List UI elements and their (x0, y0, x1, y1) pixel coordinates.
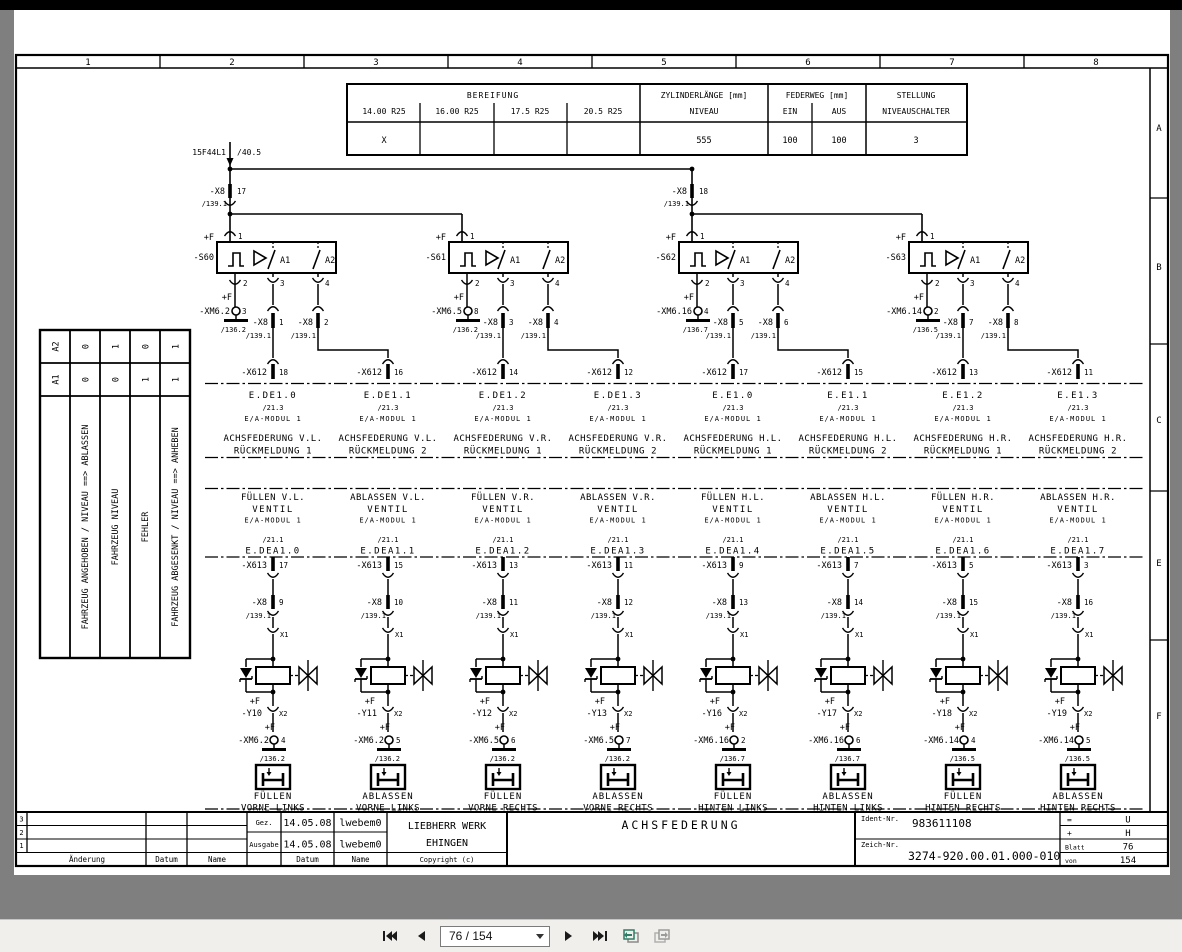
pin-contact (546, 313, 550, 328)
pin-contact (1006, 313, 1010, 328)
pin-contact (501, 557, 505, 571)
signal-name: E.DEA1.7 (1050, 547, 1105, 557)
function-line1: ABLASSEN H.L. (810, 493, 886, 503)
pin-contact (386, 364, 390, 379)
contact-switch (1003, 250, 1010, 269)
terminal-name: -XM6.5 (468, 736, 499, 746)
connector-pin: 4 (554, 318, 559, 327)
socket-arc (958, 707, 969, 711)
socket-arc (958, 307, 969, 311)
coil-pin-label: X1 (740, 631, 748, 639)
connector-label: -X613 (701, 561, 727, 571)
connector-ref: /139.1 (476, 612, 501, 620)
device-name: -Y16 (702, 709, 722, 719)
connector-ref: /139.1 (591, 612, 616, 620)
connector-ref: /139.1 (936, 332, 961, 340)
coil-pin-label: X1 (395, 631, 403, 639)
module-label: E/A-MODUL 1 (1049, 517, 1106, 525)
diode-icon (585, 668, 597, 678)
device-plus: +F (725, 723, 735, 733)
connector-pin: 17 (739, 368, 748, 377)
pin-contact (1076, 364, 1080, 379)
titleblock-label: Ausgabe (249, 841, 279, 849)
function-line1: ABLASSEN H.R. (1040, 493, 1116, 503)
socket-arc (498, 628, 509, 632)
module-label: E/A-MODUL 1 (819, 415, 876, 423)
state-label: FAHRZEUG NIVEAU (111, 489, 121, 566)
function-line2: RÜCKMELDUNG 1 (234, 446, 312, 457)
contact-label: A2 (785, 256, 795, 266)
terminal-ref: /136.7 (683, 326, 708, 334)
titleblock-value: U (1125, 816, 1130, 826)
pin-contact (776, 313, 780, 328)
valve-icon (874, 667, 883, 684)
terminal-circle (500, 736, 508, 744)
socket-arc (728, 360, 739, 364)
last-page-button[interactable] (588, 924, 612, 948)
socket-arc (613, 628, 624, 632)
pin-number: 4 (1015, 279, 1020, 288)
first-page-button[interactable] (378, 924, 402, 948)
terminal-name: -XM6.2 (199, 307, 230, 317)
device-name: -S63 (886, 253, 906, 263)
amplifier-symbol (486, 251, 498, 265)
terminal-ref: /136.2 (260, 755, 285, 763)
pin-number: 2 (475, 279, 480, 288)
terminal-pin: 6 (511, 736, 516, 745)
signal-name: E.E1.1 (827, 391, 869, 401)
connector-ref: /139.1 (706, 332, 731, 340)
connector-pin: 11 (1084, 368, 1093, 377)
company-name: EHINGEN (426, 838, 468, 849)
sheet-ref: /21.3 (1067, 404, 1088, 412)
socket-arc (268, 307, 279, 311)
next-view-button[interactable] (650, 924, 674, 948)
sheet-ref: /21.3 (262, 404, 283, 412)
sheet-ref: /21.1 (722, 536, 743, 544)
sheet-ref: /21.1 (1067, 536, 1088, 544)
contact-label: A2 (325, 256, 335, 266)
valve-icon (414, 667, 423, 684)
coil-pin-label: X1 (625, 631, 633, 639)
sheet-ref: /21.1 (837, 536, 858, 544)
previous-page-button[interactable] (409, 924, 433, 948)
connector-ref: /139.1 (1051, 612, 1076, 620)
spec-value: 3 (913, 136, 918, 146)
coil-pin-label: X2 (969, 710, 977, 718)
frame-row-label: C (1156, 416, 1161, 426)
pin-number: 4 (555, 279, 560, 288)
signal-name: E.DE1.0 (249, 391, 297, 401)
terminal-ref: /136.2 (490, 755, 515, 763)
sheet-ref: /21.1 (607, 536, 628, 544)
pin-contact (731, 313, 735, 328)
coil-box (371, 667, 405, 684)
axle-pictogram (946, 765, 980, 789)
diode-icon (1045, 668, 1057, 678)
connector-pin: 9 (739, 561, 744, 570)
supply-label: 15F44L1 (192, 148, 226, 157)
connector-label: -X8 (1057, 598, 1072, 608)
page-number-combobox[interactable]: 76 / 154 (440, 926, 550, 947)
valve-icon (653, 667, 662, 684)
pulse-symbol (690, 253, 706, 266)
function-line2: RÜCKMELDUNG 1 (464, 446, 542, 457)
terminal-circle (960, 736, 968, 744)
connector-pin: 18 (279, 368, 289, 377)
titleblock-value: lwebem0 (339, 840, 381, 851)
contact-switch (498, 250, 505, 269)
terminal-pin: 4 (281, 736, 286, 745)
contact-label: A2 (1015, 256, 1025, 266)
connector-label: -X8 (988, 318, 1003, 328)
connector-label: -X612 (931, 368, 957, 378)
last-page-icon (592, 930, 608, 942)
axle-tick-arrow (497, 772, 502, 776)
device-plus: +F (595, 697, 605, 707)
connector-pin: 16 (394, 368, 404, 377)
socket-arc (498, 307, 509, 311)
valve-icon (883, 667, 892, 684)
axle-pictogram (486, 765, 520, 789)
titleblock-label: Name (351, 855, 370, 864)
sheet-ref: /21.3 (952, 404, 973, 412)
schematic-drawing: 12345678ABCEFBEREIFUNG14.00 R25X16.00 R2… (14, 10, 1170, 875)
connector-pin: 12 (624, 598, 633, 607)
function-line2: VENTIL (252, 505, 294, 515)
pin-number: 3 (280, 279, 285, 288)
device-plus: +F (825, 697, 835, 707)
socket-arc (498, 360, 509, 364)
socket-arc (728, 707, 739, 711)
connector-label: -X613 (241, 561, 267, 571)
function-line1: ACHSFEDERUNG H.R. (914, 434, 1013, 444)
valve-icon (308, 667, 317, 684)
drawing-title: ACHSFEDERUNG (621, 818, 740, 832)
valve-icon (998, 667, 1007, 684)
connector-ref: /139.1 (291, 332, 316, 340)
function-line1: FÜLLEN V.R. (471, 492, 535, 503)
pin-contact (961, 557, 965, 571)
frame-row-label: E (1156, 559, 1161, 569)
axle-tick-arrow (1072, 772, 1077, 776)
terminal-circle (385, 736, 393, 744)
titleblock-label: Ident-Nr. (861, 815, 899, 823)
pin-contact (961, 313, 965, 328)
frame-column-label: 5 (661, 58, 666, 68)
socket-arc (498, 707, 509, 711)
pin-contact (386, 595, 390, 609)
terminal-pin: 6 (856, 736, 861, 745)
signal-name: E.E1.2 (942, 391, 984, 401)
socket-arc (728, 573, 739, 577)
titleblock-label: + (1067, 829, 1072, 838)
pin-number: 2 (243, 279, 248, 288)
socket-arc (1003, 278, 1014, 282)
socket-arc (383, 707, 394, 711)
contact-switch (543, 250, 550, 269)
spec-header: EIN (783, 107, 798, 116)
socket-arc (958, 278, 969, 282)
signal-name: E.DEA1.5 (820, 547, 875, 557)
signal-name: E.DEA1.6 (935, 547, 990, 557)
socket-arc (543, 278, 554, 282)
terminal-ref: /136.5 (1065, 755, 1090, 763)
function-line2: VENTIL (597, 505, 639, 515)
coil-box (486, 667, 520, 684)
pin-number: 3 (740, 279, 745, 288)
connector-ref: /139.1 (706, 612, 731, 620)
diode-icon (930, 668, 942, 678)
connector-label: -X8 (712, 598, 727, 608)
spec-tire: 20.5 R25 (584, 107, 623, 116)
window-top-bar (0, 0, 1182, 10)
supply-ref: /40.5 (237, 148, 261, 157)
device-plus: +F (222, 293, 232, 303)
socket-arc (268, 573, 279, 577)
device-plus: +F (840, 723, 850, 733)
pin-contact (501, 595, 505, 609)
connector-pin: 6 (784, 318, 789, 327)
module-label: E/A-MODUL 1 (704, 415, 761, 423)
axle-tick-arrow (382, 772, 387, 776)
pin-contact (846, 557, 850, 571)
terminal-pin: 3 (242, 307, 247, 316)
function-line1: ACHSFEDERUNG V.L. (339, 434, 438, 444)
terminal-name: -XM6.14 (923, 736, 959, 746)
valve-icon (644, 667, 653, 684)
socket-arc (958, 573, 969, 577)
terminal-pin: 5 (1086, 736, 1091, 745)
connector-ref: /139.1 (246, 332, 271, 340)
contact-switch (728, 250, 735, 269)
diode-icon (355, 668, 367, 678)
pin-contact (731, 557, 735, 571)
valve-icon (759, 667, 768, 684)
terminal-name: -XM6.2 (353, 736, 384, 746)
spec-value: 100 (831, 136, 846, 146)
terminal-ref: /136.7 (720, 755, 745, 763)
socket-arc (613, 573, 624, 577)
pin-contact (316, 313, 320, 328)
device-plus: +F (666, 233, 676, 243)
spec-tire: 16.00 R25 (435, 107, 479, 116)
sensor-block (449, 242, 568, 273)
function-line1: ABLASSEN V.R. (580, 493, 656, 503)
terminal-circle (270, 736, 278, 744)
connector-pin: 1 (279, 318, 284, 327)
connector-pin: 18 (699, 187, 709, 196)
titleblock-label: Datum (155, 855, 178, 864)
connector-pin: 3 (1084, 561, 1089, 570)
connector-pin: 8 (1014, 318, 1019, 327)
socket-arc (1073, 628, 1084, 632)
frame-column-label: 6 (805, 58, 810, 68)
function-line2: VENTIL (712, 505, 754, 515)
pin-contact (501, 364, 505, 379)
signal-name: E.E1.0 (712, 391, 754, 401)
first-page-icon (382, 930, 398, 942)
ident-number: 983611108 (912, 817, 972, 830)
terminal-circle (464, 307, 472, 315)
socket-arc (313, 307, 324, 311)
connector-ref: /139.1 (664, 200, 689, 208)
titleblock-label: Datum (296, 855, 319, 864)
socket-arc (383, 573, 394, 577)
output-line1: FÜLLEN (254, 791, 293, 802)
connector-ref: /139.1 (936, 612, 961, 620)
module-label: E/A-MODUL 1 (474, 415, 531, 423)
connector-label: -X8 (482, 598, 497, 608)
axle-pictogram (256, 765, 290, 789)
coil-box (256, 667, 290, 684)
titleblock-value: H (1125, 829, 1130, 839)
pin-contact (271, 595, 275, 609)
spec-value: 555 (696, 136, 711, 146)
device-plus: +F (896, 233, 906, 243)
socket-arc (1003, 307, 1014, 311)
connector-label: -X613 (356, 561, 382, 571)
contact-label: A1 (510, 256, 520, 266)
pin-number: 2 (935, 279, 940, 288)
state-label: FAHRZEUG ABGESENKT / NIVEAU ==> ANHEBEN (171, 427, 181, 627)
signal-name: E.DE1.3 (594, 391, 642, 401)
revision-number: 2 (19, 829, 23, 837)
connector-label: -X613 (816, 561, 842, 571)
function-line2: RÜCKMELDUNG 1 (694, 446, 772, 457)
device-name: -S61 (426, 253, 446, 263)
coil-pin-label: X2 (1084, 710, 1092, 718)
sheet-ref: /21.3 (607, 404, 628, 412)
device-plus: +F (454, 293, 464, 303)
signal-name: E.DEA1.3 (590, 547, 645, 557)
connector-pin: 15 (969, 598, 978, 607)
sheet-ref: /21.1 (492, 536, 513, 544)
terminal-ref: /136.2 (375, 755, 400, 763)
previous-page-icon (416, 930, 426, 942)
terminal-name: -XM6.5 (431, 307, 462, 317)
pin-contact (961, 364, 965, 379)
frame-column-label: 2 (229, 58, 234, 68)
pin-number: 2 (705, 279, 710, 288)
coil-pin-label: X1 (280, 631, 288, 639)
pin-number: 1 (930, 232, 935, 241)
connector-pin: 13 (739, 598, 748, 607)
frame-row-label: A (1156, 124, 1162, 134)
connector-label: -X612 (1046, 368, 1072, 378)
device-plus: +F (365, 697, 375, 707)
valve-icon (1104, 667, 1113, 684)
titleblock-value: 14.05.08 (283, 840, 331, 851)
sheet-ref: /21.3 (377, 404, 398, 412)
contact-label: A1 (740, 256, 750, 266)
function-line1: ACHSFEDERUNG V.R. (454, 434, 553, 444)
socket-arc (843, 360, 854, 364)
axle-tick-arrow (957, 772, 962, 776)
connector-label: -X612 (471, 368, 497, 378)
output-line1: ABLASSEN (592, 792, 643, 802)
pin-contact (271, 557, 275, 571)
socket-arc (543, 307, 554, 311)
device-name: -S62 (656, 253, 676, 263)
connector-pin: 15 (854, 368, 863, 377)
contact-switch (773, 250, 780, 269)
signal-name: E.DE1.1 (364, 391, 412, 401)
device-name: -Y11 (357, 709, 377, 719)
pin-number: 3 (970, 279, 975, 288)
wire (318, 328, 388, 358)
amplifier-symbol (946, 251, 958, 265)
pin-number: 1 (470, 232, 475, 241)
axle-tick-arrow (727, 772, 732, 776)
frame-column-label: 3 (373, 58, 378, 68)
function-line2: RÜCKMELDUNG 2 (349, 446, 427, 457)
titleblock-value: 14.05.08 (283, 818, 331, 829)
connector-ref: /139.1 (361, 612, 386, 620)
output-line1: ABLASSEN (822, 792, 873, 802)
connector-label: -X8 (597, 598, 612, 608)
terminal-circle (924, 307, 932, 315)
next-page-button[interactable] (557, 924, 581, 948)
state-value: 1 (142, 377, 152, 382)
connector-pin: 14 (854, 598, 864, 607)
coil-box (601, 667, 635, 684)
device-plus: +F (380, 723, 390, 733)
coil-pin-label: X2 (279, 710, 287, 718)
connector-pin: 12 (624, 368, 633, 377)
connector-label: -X8 (827, 598, 842, 608)
pin-number: 3 (510, 279, 515, 288)
titleblock-label: von (1065, 857, 1077, 865)
state-header: A2 (52, 341, 62, 351)
previous-view-button[interactable] (619, 924, 643, 948)
device-plus: +F (480, 697, 490, 707)
axle-pictogram (601, 765, 635, 789)
terminal-circle (730, 736, 738, 744)
frame-column-label: 1 (85, 58, 90, 68)
wire (548, 328, 618, 358)
output-line1: ABLASSEN (1052, 792, 1103, 802)
pin-contact (731, 364, 735, 379)
device-plus: +F (265, 723, 275, 733)
function-line1: ACHSFEDERUNG V.L. (224, 434, 323, 444)
pin-contact (271, 364, 275, 379)
spec-header: AUS (832, 107, 847, 116)
connector-label: -X613 (471, 561, 497, 571)
coil-box (1061, 667, 1095, 684)
connector-pin: 17 (279, 561, 288, 570)
valve-icon (529, 667, 538, 684)
frame-column-label: 7 (949, 58, 954, 68)
socket-arc (383, 628, 394, 632)
connector-pin: 2 (324, 318, 329, 327)
state-value: 1 (172, 377, 182, 382)
socket-arc (728, 628, 739, 632)
terminal-pin: 5 (396, 736, 401, 745)
previous-view-icon (622, 928, 640, 944)
terminal-name: -XM6.14 (886, 307, 922, 317)
terminal-name: -XM6.16 (693, 736, 729, 746)
socket-arc (498, 573, 509, 577)
connector-label: -X8 (758, 318, 773, 328)
spec-header: NIVEAU (690, 107, 719, 116)
titleblock-label: Gez. (256, 819, 273, 827)
pin-contact (690, 184, 694, 198)
pin-contact (616, 595, 620, 609)
contact-switch (313, 250, 320, 269)
copyright-label: Copyright (c) (420, 856, 475, 864)
sheet-ref: /21.3 (722, 404, 743, 412)
